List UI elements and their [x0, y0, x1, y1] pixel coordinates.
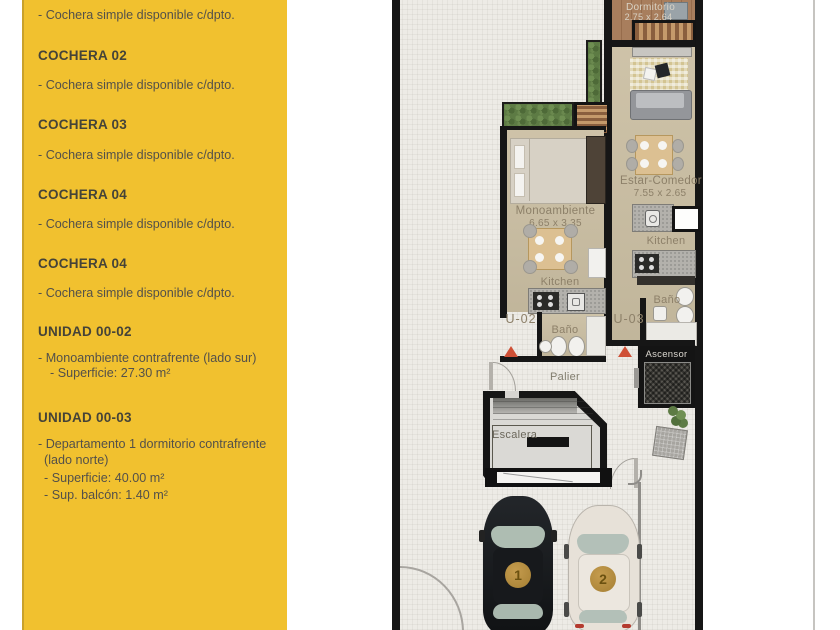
plate — [640, 159, 649, 168]
sink-u02 — [539, 340, 552, 353]
estar-dining-table — [635, 135, 673, 175]
car-mirror — [551, 530, 557, 542]
flyer-page: - Cochera simple disponible c/dpto. COCH… — [0, 0, 840, 630]
stair-entry-gap — [505, 391, 519, 398]
room-label-palier: Palier — [525, 371, 605, 383]
car-windshield — [577, 534, 629, 554]
bed-u02 — [510, 138, 588, 204]
bidet-u02 — [568, 336, 585, 357]
floor-plan: Dormitorio 2.75 x 2.64 Estar-Comedor 7.5… — [392, 0, 703, 630]
stair-treads — [493, 398, 593, 426]
plant — [668, 406, 678, 416]
wall-dormitorio-estar — [612, 40, 695, 47]
car-wheel — [564, 602, 569, 617]
dining-chair — [523, 260, 537, 274]
section-title-cochera-04b: COCHERA 04 — [38, 256, 276, 271]
driveway-curb-arc — [400, 566, 464, 630]
plate — [658, 141, 667, 150]
room-label-kitchen-u03: Kitchen — [626, 235, 706, 247]
cochera-number-badge: 2 — [590, 566, 616, 592]
plate — [555, 253, 564, 262]
unit-label-u03: U-03 — [612, 312, 646, 326]
estar-window-ledge — [632, 47, 692, 57]
toilet-u02 — [550, 336, 567, 357]
room-dims-estar-comedor: 7.55 x 2.65 — [620, 188, 700, 199]
plate — [658, 159, 667, 168]
section-line: - Sup. balcón: 1.40 m² — [44, 488, 282, 503]
door-swing-palier — [493, 362, 516, 391]
car-rear-window — [493, 604, 543, 619]
burner — [548, 295, 553, 300]
canopy-post — [600, 468, 612, 487]
sink-icon — [645, 210, 660, 227]
section-line: - Monoambiente contrafrente (lado sur) — [38, 351, 276, 366]
dining-chair — [672, 157, 684, 171]
car-windshield — [491, 526, 545, 548]
room-label-bano-u03: Baño — [627, 294, 707, 306]
section-line: - Cochera simple disponible c/dpto. — [38, 78, 276, 93]
dining-chair — [672, 139, 684, 153]
dining-chair — [626, 139, 638, 153]
sofa-cushions — [636, 93, 684, 108]
burner — [649, 257, 654, 262]
elevator-door — [634, 368, 639, 388]
burner — [649, 265, 654, 270]
sink-u03 — [653, 306, 667, 321]
car-1: 1 — [483, 496, 553, 630]
car-taillight — [622, 624, 631, 628]
cochera-number-badge: 1 — [505, 562, 531, 588]
section-line: - Superficie: 27.30 m² — [50, 366, 288, 381]
room-label-monoambiente: Monoambiente — [507, 205, 604, 217]
sink-drain — [649, 215, 657, 223]
entry-arrow-u03 — [618, 346, 632, 357]
room-label-escalera: Escalera — [492, 429, 562, 441]
section-line: - Cochera simple disponible c/dpto. — [38, 286, 276, 301]
dining-chair — [564, 260, 578, 274]
car-taillight — [575, 624, 584, 628]
burner — [537, 302, 542, 307]
plate — [640, 141, 649, 150]
dining-chair — [626, 157, 638, 171]
bed-fold-line — [529, 139, 530, 201]
kitchen-u03-sink-counter — [632, 204, 674, 232]
wall-u02-left — [500, 126, 507, 318]
section-title-cochera-03: COCHERA 03 — [38, 117, 276, 132]
bed-pillow — [514, 145, 525, 169]
section-line: (lado norte) — [44, 453, 282, 468]
section-line: - Cochera simple disponible c/dpto. — [38, 148, 276, 163]
burner — [537, 295, 542, 300]
oven-door — [572, 298, 580, 306]
car-mirror — [479, 530, 485, 542]
stove-icon — [635, 254, 659, 273]
stove-icon — [533, 292, 559, 310]
section-line: - Cochera simple disponible c/dpto. — [38, 217, 276, 232]
wall-right — [695, 0, 703, 630]
dining-chair — [564, 224, 578, 238]
burner — [548, 302, 553, 307]
shower-u02 — [586, 316, 606, 356]
estar-sofa — [630, 90, 692, 120]
burner — [639, 257, 644, 262]
section-title-unidad-00-03: UNIDAD 00-03 — [38, 410, 276, 425]
doormat — [652, 426, 688, 460]
dining-chair — [523, 224, 537, 238]
fridge-u02 — [588, 248, 606, 278]
kitchen-u02-counter — [528, 288, 606, 314]
plate — [535, 253, 544, 262]
hedge-vertical — [586, 40, 602, 104]
section-title-unidad-00-02: UNIDAD 00-02 — [38, 324, 276, 339]
section-title-cochera-02: COCHERA 02 — [38, 48, 276, 63]
oven-icon — [567, 293, 585, 311]
car-rear-window — [579, 610, 627, 623]
garage-canopy — [485, 468, 612, 487]
plate — [555, 236, 564, 245]
section-line: - Departamento 1 dormitorio contrafrente — [38, 437, 276, 452]
plate — [535, 236, 544, 245]
room-label-ascensor: Ascensor — [638, 349, 695, 360]
room-label-estar-comedor: Estar-Comedor — [620, 175, 700, 187]
room-label-kitchen-u02: Kitchen — [520, 276, 600, 288]
bed-pillow — [514, 173, 525, 197]
section-title-cochera-04: COCHERA 04 — [38, 187, 276, 202]
canopy-post — [485, 468, 497, 487]
canopy-brace — [503, 473, 573, 483]
shaft-void — [672, 206, 701, 232]
page-edge-line — [813, 0, 815, 630]
room-dims-dormitorio: 2.75 x 2.64 — [611, 12, 686, 22]
wardrobe-u02 — [586, 136, 606, 204]
elevator: Ascensor — [638, 346, 695, 408]
car-wheel — [637, 544, 642, 559]
burner — [639, 265, 644, 270]
cochera-intro-line: - Cochera simple disponible c/dpto. — [38, 8, 276, 23]
elevator-cab — [644, 362, 691, 404]
wall-left — [392, 0, 400, 630]
info-sidebar: - Cochera simple disponible c/dpto. COCH… — [22, 0, 287, 630]
car-wheel — [637, 602, 642, 617]
car-wheel — [564, 544, 569, 559]
kitchen-u03-stove-counter — [632, 250, 696, 278]
kitchen-u03-bar — [637, 276, 695, 285]
car-2: 2 — [568, 505, 640, 630]
section-line: - Superficie: 40.00 m² — [44, 471, 282, 486]
entry-arrow-u02 — [504, 346, 518, 357]
